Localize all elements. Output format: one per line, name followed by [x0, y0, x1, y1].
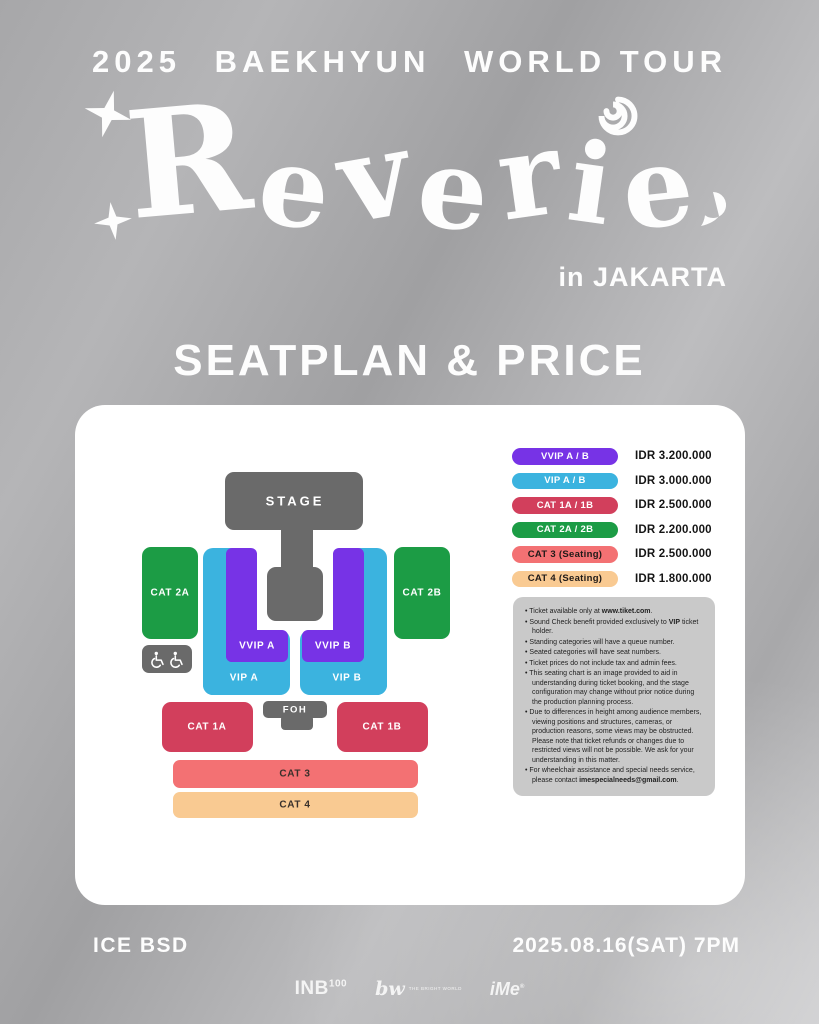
- legend-row: VVIP A / B IDR 3.200.000: [512, 448, 712, 465]
- star-icon: [84, 90, 132, 138]
- legend-pill: CAT 2A / 2B: [512, 522, 618, 539]
- bright-world-logo: bw THE BRIGHT WORLD: [375, 978, 462, 1000]
- legend-row: VIP A / B IDR 3.000.000: [512, 473, 712, 490]
- foh-label: FOH: [283, 705, 308, 716]
- note-item: Sound Check benefit provided exclusively…: [525, 618, 705, 637]
- legend-pill: CAT 3 (Seating): [512, 546, 618, 563]
- note-item: Seated categories will have seat numbers…: [525, 648, 705, 658]
- wheelchair-icon: [150, 651, 165, 668]
- header-artist: BAEKHYUN: [215, 44, 431, 80]
- note-item: Ticket prices do not include tax and adm…: [525, 659, 705, 669]
- city-label: in JAKARTA: [559, 262, 728, 293]
- legend-pill: CAT 1A / 1B: [512, 497, 618, 514]
- legend-price: IDR 3.200.000: [635, 450, 712, 462]
- notes-box: Ticket available only at www.tiket.com. …: [513, 597, 715, 796]
- reverie-logo: Reverie: [60, 84, 759, 248]
- legend-price: IDR 3.000.000: [635, 475, 712, 487]
- header-year: 2025: [92, 44, 181, 80]
- zone-cat1a-label: CAT 1A: [188, 722, 227, 733]
- stage-platform: [267, 567, 323, 621]
- note-item: Ticket available only at www.tiket.com.: [525, 607, 705, 617]
- zone-vip-a-label: VIP A: [230, 673, 259, 684]
- wheelchair-area: [142, 645, 192, 673]
- price-legend: VVIP A / B IDR 3.200.000 VIP A / B IDR 3…: [512, 448, 712, 595]
- notes-list: Ticket available only at www.tiket.com. …: [525, 607, 705, 785]
- zone-vvip-a-label: VVIP A: [239, 641, 275, 652]
- note-item: For wheelchair assistance and special ne…: [525, 766, 705, 785]
- legend-row: CAT 3 (Seating) IDR 2.500.000: [512, 546, 712, 563]
- stage-runway: [281, 528, 313, 570]
- zone-cat4-label: CAT 4: [279, 800, 310, 811]
- zone-vvip-b-label: VVIP B: [315, 641, 351, 652]
- legend-row: CAT 1A / 1B IDR 2.500.000: [512, 497, 712, 514]
- comma-blob-icon: [700, 192, 726, 226]
- legend-price: IDR 2.500.000: [635, 499, 712, 511]
- legend-price: IDR 1.800.000: [635, 573, 712, 585]
- ime-logo: iMe®: [490, 979, 524, 1000]
- legend-row: CAT 2A / 2B IDR 2.200.000: [512, 522, 712, 539]
- header-tour: WORLD TOUR: [464, 44, 727, 80]
- zone-vip-b-label: VIP B: [333, 673, 362, 684]
- zone-cat3-label: CAT 3: [279, 769, 310, 780]
- sponsor-logos: INB100 bw THE BRIGHT WORLD iMe®: [0, 978, 819, 1000]
- zone-cat1b-label: CAT 1B: [363, 722, 402, 733]
- legend-price: IDR 2.500.000: [635, 548, 712, 560]
- legend-pill: VIP A / B: [512, 473, 618, 490]
- venue-label: ICE BSD: [93, 934, 189, 958]
- zone-cat2b-label: CAT 2B: [403, 588, 442, 599]
- legend-price: IDR 2.200.000: [635, 524, 712, 536]
- legend-pill: VVIP A / B: [512, 448, 618, 465]
- wheelchair-icon: [169, 651, 184, 668]
- legend-row: CAT 4 (Seating) IDR 1.800.000: [512, 571, 712, 588]
- header: 2025 BAEKHYUN WORLD TOUR: [92, 44, 727, 80]
- foh-block: [281, 715, 313, 730]
- stage-label: STAGE: [266, 494, 325, 509]
- datetime-label: 2025.08.16(SAT) 7PM: [512, 934, 740, 958]
- zone-cat2a-label: CAT 2A: [151, 588, 190, 599]
- inb100-logo: INB100: [295, 978, 347, 1000]
- legend-pill: CAT 4 (Seating): [512, 571, 618, 588]
- section-title: SEATPLAN & PRICE: [0, 336, 819, 386]
- note-item: Standing categories will have a queue nu…: [525, 638, 705, 648]
- poster: 2025 BAEKHYUN WORLD TOUR Reverie in JAKA…: [0, 0, 819, 1024]
- note-item: Due to differences in height among audie…: [525, 708, 705, 765]
- star-icon: [94, 202, 132, 240]
- note-item: This seating chart is an image provided …: [525, 669, 705, 707]
- spiral-icon: [596, 94, 640, 138]
